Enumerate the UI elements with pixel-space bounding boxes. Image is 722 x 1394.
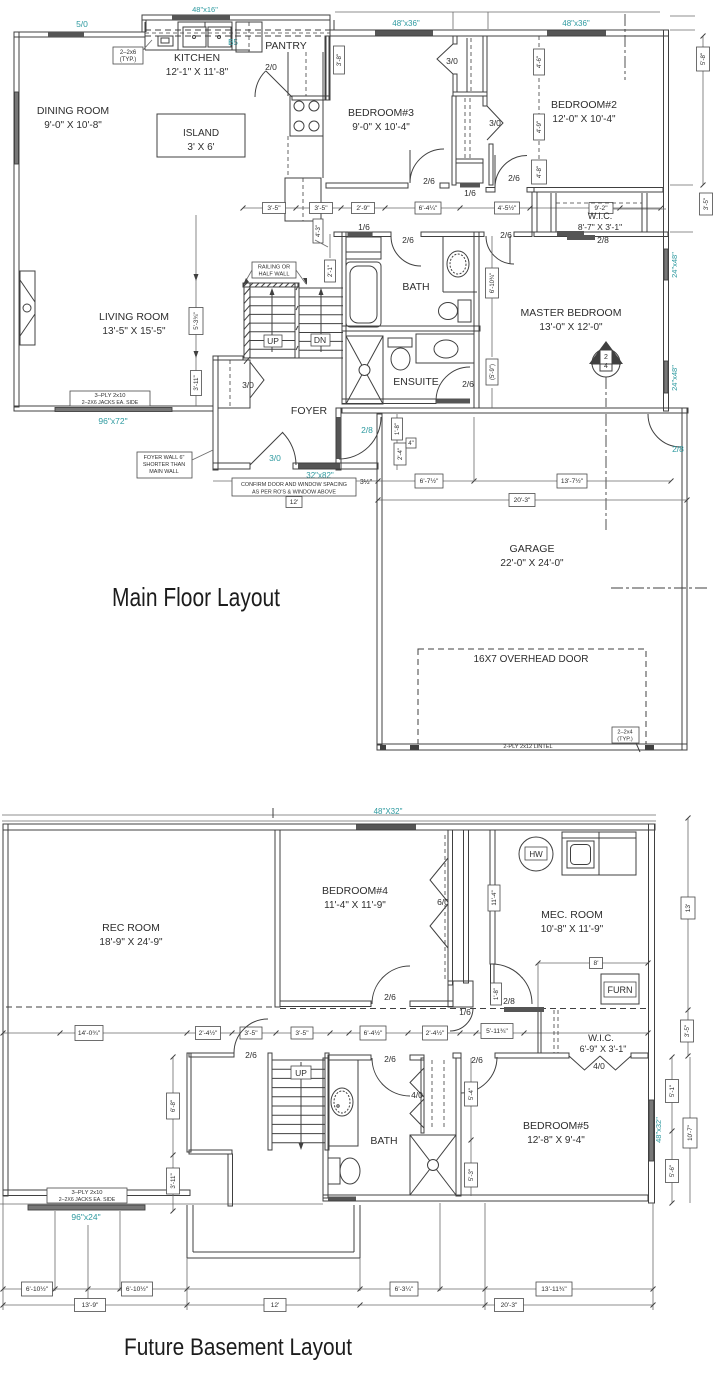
svg-text:48"X32": 48"X32" (374, 807, 403, 816)
svg-text:12': 12' (271, 1302, 280, 1309)
svg-text:LIVING ROOM: LIVING ROOM (99, 311, 169, 323)
svg-text:8'-7" X 3'-1": 8'-7" X 3'-1" (578, 222, 622, 232)
svg-text:2'-1": 2'-1" (328, 265, 334, 277)
svg-text:4": 4" (408, 441, 413, 447)
svg-text:14'-0¾": 14'-0¾" (78, 1030, 101, 1037)
svg-text:2'-4½": 2'-4½" (426, 1029, 445, 1037)
svg-text:BEDROOM#2: BEDROOM#2 (551, 99, 617, 111)
svg-text:2/0: 2/0 (265, 62, 277, 72)
svg-text:5'-4": 5'-4" (468, 1088, 475, 1100)
svg-text:2/6: 2/6 (384, 1054, 396, 1064)
svg-text:5'-3": 5'-3" (468, 1169, 475, 1181)
svg-text:2/6: 2/6 (500, 230, 512, 240)
svg-text:20'-3": 20'-3" (514, 497, 531, 504)
svg-text:BEDROOM#5: BEDROOM#5 (523, 1120, 589, 1132)
svg-text:3' X 6': 3' X 6' (187, 142, 214, 153)
svg-text:2/8: 2/8 (361, 425, 373, 435)
svg-text:2/6: 2/6 (384, 992, 396, 1002)
svg-text:GARAGE: GARAGE (510, 543, 555, 555)
svg-text:3'-5": 3'-5" (703, 198, 710, 210)
svg-text:5'-11¾": 5'-11¾" (486, 1028, 508, 1035)
svg-text:FOYER WALL 6": FOYER WALL 6" (144, 455, 185, 461)
svg-text:1/6: 1/6 (358, 222, 370, 232)
svg-text:5/0: 5/0 (76, 19, 88, 29)
svg-text:3'-5": 3'-5" (314, 205, 328, 212)
svg-text:2–2x4: 2–2x4 (617, 730, 632, 736)
svg-text:10'-7": 10'-7" (687, 1125, 694, 1141)
svg-text:W.I.C.: W.I.C. (588, 211, 613, 221)
svg-text:6'-4¼": 6'-4¼" (419, 205, 438, 212)
svg-text:3'-8": 3'-8" (336, 54, 343, 66)
svg-text:6'-10½": 6'-10½" (26, 1285, 49, 1293)
svg-text:5'-8": 5'-8" (700, 53, 707, 65)
svg-text:AS PER RO'S & WINDOW ABOVE: AS PER RO'S & WINDOW ABOVE (252, 490, 336, 496)
svg-text:16X7 OVERHEAD DOOR: 16X7 OVERHEAD DOOR (473, 654, 588, 665)
svg-text:2–2X6 JACKS EA. SIDE: 2–2X6 JACKS EA. SIDE (59, 1197, 116, 1203)
svg-text:6/0: 6/0 (437, 897, 449, 907)
svg-text:2'-9": 2'-9" (356, 205, 370, 212)
svg-text:6'-8": 6'-8" (170, 1100, 177, 1112)
svg-text:4'-9": 4'-9" (536, 121, 543, 133)
svg-text:13'-5" X 15'-5": 13'-5" X 15'-5" (102, 326, 166, 337)
svg-text:3'-5": 3'-5" (295, 1030, 309, 1037)
svg-text:DN: DN (314, 335, 326, 345)
svg-text:ISLAND: ISLAND (183, 128, 219, 139)
svg-text:12'-0" X 10'-4": 12'-0" X 10'-4" (552, 114, 616, 125)
svg-text:B5: B5 (228, 38, 238, 47)
svg-text:9'-0" X 10'-4": 9'-0" X 10'-4" (352, 122, 410, 133)
svg-text:3/0: 3/0 (269, 453, 281, 463)
svg-text:UP: UP (295, 1068, 307, 1078)
svg-text:3/0: 3/0 (446, 56, 458, 66)
svg-text:5'-3¾": 5'-3¾" (193, 312, 200, 329)
svg-text:3–PLY 2x10: 3–PLY 2x10 (71, 1190, 102, 1196)
svg-text:3–PLY 2x10: 3–PLY 2x10 (94, 393, 125, 399)
svg-text:11'-4": 11'-4" (491, 890, 498, 905)
svg-text:1'-8": 1'-8" (494, 988, 500, 1000)
svg-text:(TYP.): (TYP.) (617, 737, 633, 743)
svg-text:4'-5½": 4'-5½" (498, 204, 517, 212)
svg-text:22'-0" X 24'-0": 22'-0" X 24'-0" (500, 558, 564, 569)
svg-text:24"x48": 24"x48" (670, 365, 679, 391)
svg-text:2'-4½": 2'-4½" (199, 1029, 218, 1037)
svg-text:BATH: BATH (370, 1135, 397, 1147)
svg-text:48"x32": 48"x32" (654, 1117, 663, 1143)
svg-text:4'-6": 4'-6" (536, 56, 543, 68)
svg-text:DINING ROOM: DINING ROOM (37, 105, 109, 117)
svg-text:3'-11": 3'-11" (170, 1173, 177, 1188)
svg-text:6'-10¾": 6'-10¾" (490, 273, 496, 293)
svg-text:W.I.C.: W.I.C. (588, 1033, 614, 1044)
svg-text:3/0: 3/0 (489, 118, 501, 128)
svg-text:3½": 3½" (360, 478, 373, 486)
svg-text:18'-9" X 24'-9": 18'-9" X 24'-9" (99, 937, 163, 948)
svg-text:9'-0" X 10'-8": 9'-0" X 10'-8" (44, 120, 102, 131)
svg-text:BATH: BATH (402, 281, 429, 293)
svg-text:3'-5": 3'-5" (244, 1030, 258, 1037)
svg-text:48"x36": 48"x36" (562, 19, 590, 28)
svg-text:3'-5": 3'-5" (267, 205, 281, 212)
svg-text:2'-4": 2'-4" (398, 448, 404, 460)
svg-text:MAIN WALL: MAIN WALL (149, 469, 178, 475)
svg-text:4/0: 4/0 (593, 1061, 605, 1071)
svg-text:2/6: 2/6 (508, 173, 520, 183)
svg-text:BEDROOM#3: BEDROOM#3 (348, 107, 414, 119)
svg-text:1'-8": 1'-8" (395, 423, 401, 435)
svg-text:2/6: 2/6 (462, 379, 474, 389)
svg-text:FURN: FURN (608, 985, 633, 995)
svg-text:Main Floor Layout: Main Floor Layout (112, 582, 281, 612)
svg-text:CONFIRM DOOR AND WINDOW SPACIN: CONFIRM DOOR AND WINDOW SPACING (241, 482, 347, 488)
svg-text:2–2x6: 2–2x6 (120, 50, 137, 56)
svg-text:3'-11": 3'-11" (193, 375, 200, 390)
svg-text:96"x72": 96"x72" (98, 416, 127, 426)
svg-text:13'-0" X 12'-0": 13'-0" X 12'-0" (539, 322, 603, 333)
svg-text:10'-8" X 11'-9": 10'-8" X 11'-9" (541, 924, 604, 935)
svg-text:2/8: 2/8 (672, 444, 684, 454)
svg-text:FOYER: FOYER (291, 405, 328, 417)
svg-text:12': 12' (290, 499, 299, 506)
svg-text:6'-4½": 6'-4½" (364, 1029, 383, 1037)
svg-text:4'-3": 4'-3" (316, 225, 322, 237)
svg-text:2–2X6 JACKS EA. SIDE: 2–2X6 JACKS EA. SIDE (82, 400, 139, 406)
svg-text:13'-7½": 13'-7½" (561, 477, 584, 485)
svg-text:5'-1": 5'-1" (669, 1085, 676, 1097)
svg-text:MASTER BEDROOM: MASTER BEDROOM (521, 307, 622, 319)
svg-text:2/6: 2/6 (245, 1050, 257, 1060)
svg-text:(TYP.): (TYP.) (120, 57, 137, 63)
svg-text:24"x48": 24"x48" (670, 252, 679, 278)
svg-text:96"x24": 96"x24" (71, 1212, 100, 1222)
svg-text:1/6: 1/6 (464, 188, 476, 198)
svg-text:13': 13' (685, 904, 692, 913)
svg-text:HALF WALL: HALF WALL (259, 272, 290, 278)
svg-text:2/6: 2/6 (402, 235, 414, 245)
svg-text:6'-10½": 6'-10½" (126, 1285, 149, 1293)
svg-text:12'-1" X 11'-8": 12'-1" X 11'-8" (166, 67, 229, 78)
svg-text:48"x16": 48"x16" (192, 5, 218, 14)
svg-text:KITCHEN: KITCHEN (174, 52, 220, 64)
svg-text:UP: UP (267, 336, 279, 346)
svg-text:RAILING OR: RAILING OR (258, 265, 290, 271)
svg-text:13'-9": 13'-9" (82, 1302, 99, 1309)
svg-text:HW: HW (529, 850, 543, 859)
svg-text:4'-8": 4'-8" (536, 166, 543, 178)
svg-text:BEDROOM#4: BEDROOM#4 (322, 885, 388, 897)
svg-text:5'-6": 5'-6" (669, 1165, 676, 1177)
svg-text:3'-5": 3'-5" (684, 1025, 691, 1037)
svg-text:48"x36": 48"x36" (392, 19, 420, 28)
svg-text:3/0: 3/0 (242, 380, 254, 390)
svg-text:2/6: 2/6 (471, 1055, 483, 1065)
svg-text:13'-11¾": 13'-11¾" (541, 1286, 567, 1293)
svg-text:PANTRY: PANTRY (265, 40, 307, 52)
svg-text:2/8: 2/8 (597, 235, 609, 245)
svg-text:2/8: 2/8 (503, 996, 515, 1006)
svg-text:MEC. ROOM: MEC. ROOM (541, 909, 603, 921)
svg-text:2/6: 2/6 (423, 176, 435, 186)
svg-text:Future Basement Layout: Future Basement Layout (124, 1334, 352, 1361)
svg-text:2: 2 (604, 354, 608, 361)
svg-text:6'-7½": 6'-7½" (420, 477, 439, 485)
svg-text:(5'-9"): (5'-9") (490, 364, 496, 380)
svg-text:12'-8" X 9'-4": 12'-8" X 9'-4" (527, 1135, 585, 1146)
svg-text:20'-3": 20'-3" (501, 1302, 518, 1309)
svg-text:2-PLY 2x12 LINTEL: 2-PLY 2x12 LINTEL (503, 744, 552, 750)
svg-text:SHORTER THAN: SHORTER THAN (143, 462, 185, 468)
svg-text:ENSUITE: ENSUITE (393, 376, 439, 388)
svg-text:8': 8' (594, 960, 599, 967)
svg-text:6'-9" X 3'-1": 6'-9" X 3'-1" (580, 1044, 627, 1054)
svg-text:REC ROOM: REC ROOM (102, 922, 160, 934)
svg-text:11'-4" X 11'-9": 11'-4" X 11'-9" (324, 900, 386, 911)
svg-text:6'-3¼": 6'-3¼" (395, 1286, 414, 1293)
